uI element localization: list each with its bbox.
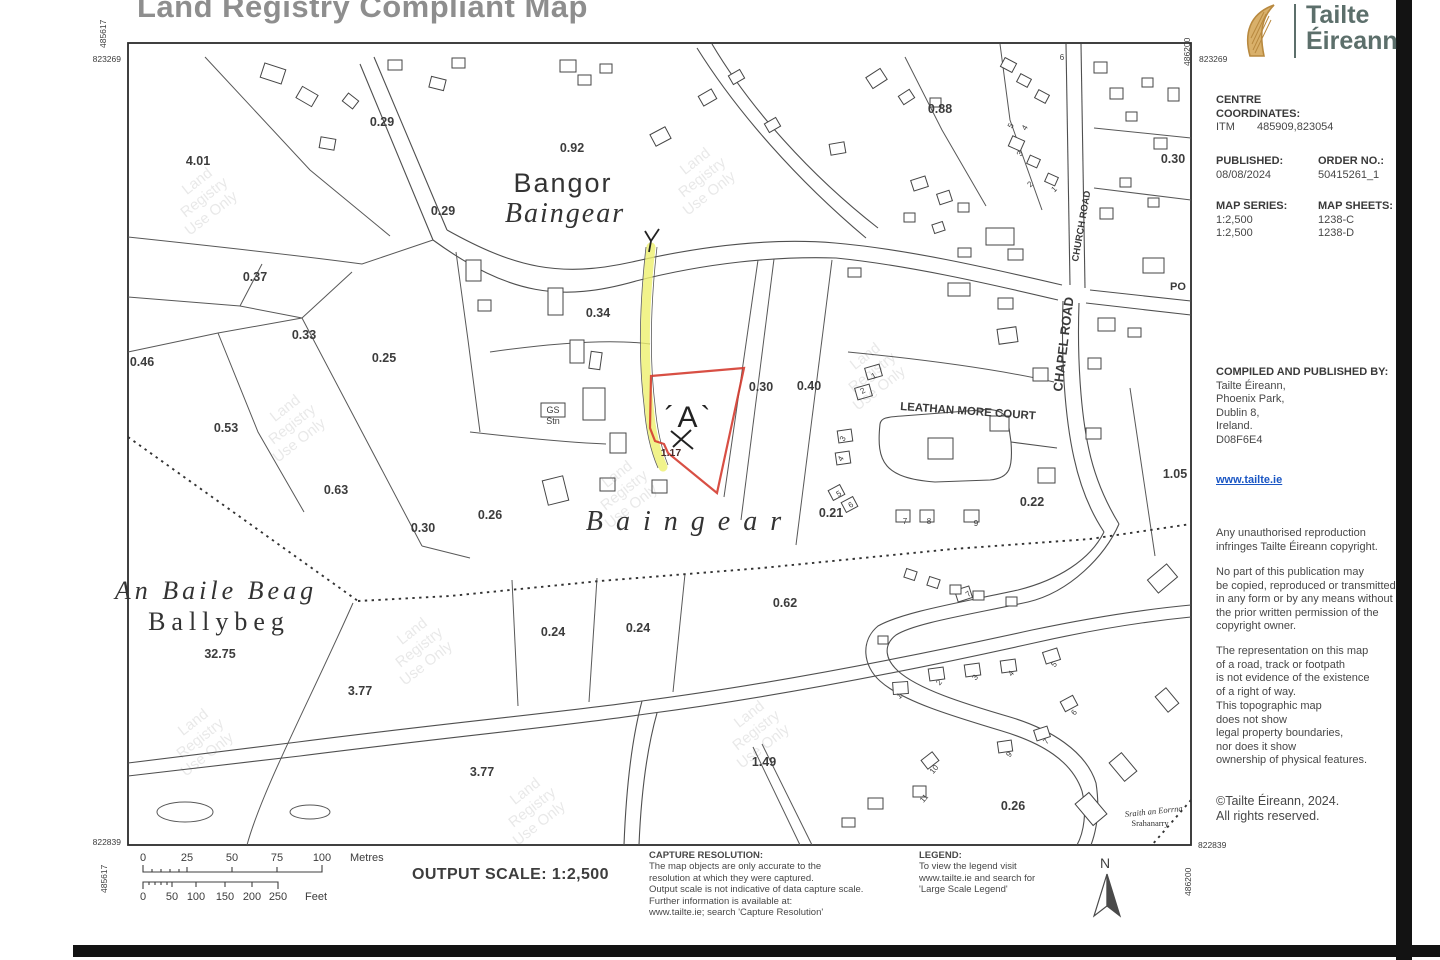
building-footprint [296, 86, 318, 106]
street-name-label: PO [1170, 281, 1186, 293]
coordinates-heading: COORDINATES: [1216, 108, 1300, 120]
street-name-label: GS [546, 405, 559, 415]
text-line: To view the legend visit [919, 861, 1079, 872]
building-footprint [1008, 249, 1023, 260]
house-number-label: 7 [903, 517, 908, 526]
order-no-label: ORDER NO.: [1318, 155, 1384, 167]
scalebar-feet-unit: Feet [305, 891, 327, 903]
parcel-area-label: 0.92 [560, 141, 584, 155]
building-footprint [893, 681, 909, 694]
text-line: The representation on this map [1216, 645, 1400, 659]
building-footprint [973, 591, 984, 600]
building-footprint [570, 340, 584, 363]
parcel-area-label: 0.63 [324, 483, 348, 497]
scalebar-metres-tick: 100 [313, 852, 331, 864]
building-footprint [1120, 178, 1131, 187]
building-footprint [878, 636, 888, 644]
text-line: ©Tailte Éireann, 2024. [1216, 794, 1400, 809]
parcel-area-label: 0.22 [1020, 495, 1044, 509]
house-number-label: 6 [1060, 53, 1065, 62]
itm-value: 485909,823054 [1257, 121, 1333, 135]
place-name-label: An Baile Beag [113, 576, 317, 605]
house-number-label: 4 [1020, 123, 1030, 132]
scalebar-metres-tick: 75 [271, 852, 283, 864]
grid-coordinate-label: 822839 [1198, 840, 1227, 850]
place-name-label: Bangor [513, 168, 612, 198]
text-line: is not evidence of the existence [1216, 672, 1400, 686]
itm-label: ITM [1216, 121, 1235, 135]
grid-coordinate-label: 486200 [1183, 867, 1193, 896]
north-label: N [1100, 855, 1110, 871]
building-footprint [1094, 62, 1107, 73]
building-footprint [1100, 208, 1113, 219]
text-line: 1:2,500 [1216, 214, 1318, 228]
parcel-area-label: 0.26 [478, 508, 502, 522]
building-footprint [1008, 136, 1024, 151]
text-line: All rights reserved. [1216, 809, 1400, 824]
building-footprint [260, 63, 286, 84]
text-line: No part of this publication may [1216, 566, 1400, 580]
scalebar-metres-tick: 25 [181, 852, 193, 864]
text-line: 1238-D [1318, 227, 1393, 241]
parcel-area-label: 0.37 [243, 270, 267, 284]
map-series-label: MAP SERIES: [1216, 200, 1287, 212]
published-label: PUBLISHED: [1216, 155, 1283, 167]
text-line: The map objects are only accurate to the [649, 861, 915, 872]
parcel-area-label: 1.05 [1163, 467, 1187, 481]
scalebar-metres-tick: 50 [226, 852, 238, 864]
building-footprint [583, 388, 605, 420]
text-line: 1238-C [1318, 214, 1393, 228]
parcel-area-label: 0.33 [292, 328, 316, 342]
grid-coordinate-label: 822839 [93, 837, 122, 847]
capture-resolution-block: CAPTURE RESOLUTION: The map objects are … [649, 850, 915, 918]
building-footprint [1035, 90, 1050, 104]
building-footprint [1000, 58, 1016, 73]
text-line: legal property boundaries, [1216, 727, 1400, 741]
published-order-block: PUBLISHED: 08/08/2024 ORDER NO.: 5041526… [1216, 155, 1400, 182]
building-footprint [1142, 78, 1153, 87]
text-line: of a road, track or footpath [1216, 659, 1400, 673]
building-footprint [868, 798, 883, 809]
text-line: 'Large Scale Legend' [919, 884, 1079, 895]
red-parcel-area-label: 1.17 [661, 447, 682, 459]
building-footprint [1075, 792, 1107, 825]
building-footprint [319, 137, 336, 150]
grid-coordinate-label: 823269 [1199, 54, 1228, 64]
street-name-label: Stn [546, 416, 560, 426]
page-title: Land Registry Compliant Map [137, 0, 588, 25]
map-series-values: 1:2,5001:2,500 [1216, 214, 1318, 241]
building-footprint [958, 248, 971, 257]
street-name-label: CHURCH ROAD [1070, 190, 1093, 263]
building-footprint [1143, 258, 1164, 273]
building-footprint [1060, 695, 1078, 711]
copying-note: No part of this publication maybe copied… [1216, 566, 1400, 634]
building-footprint [866, 68, 887, 88]
street-name-label: CHAPEL ROAD [1050, 296, 1076, 392]
brand-divider [1294, 4, 1296, 58]
scalebar-feet-tick: 100 [187, 891, 205, 903]
compiled-heading: COMPILED AND PUBLISHED BY: [1216, 366, 1388, 378]
centre-heading: CENTRE [1216, 94, 1261, 106]
capture-resolution-heading: CAPTURE RESOLUTION: [649, 850, 915, 861]
order-no-value: 50415261_1 [1318, 169, 1384, 183]
text-line: nor does it show [1216, 741, 1400, 755]
parcel-area-label: 0.29 [431, 204, 455, 218]
building-footprint [932, 222, 945, 234]
building-footprint [898, 89, 914, 104]
text-line: This topographic map [1216, 700, 1400, 714]
building-footprint [1045, 173, 1059, 186]
building-footprint [948, 283, 970, 296]
building-footprint [1128, 328, 1141, 337]
building-footprint [958, 203, 969, 212]
building-footprint [911, 176, 929, 191]
parcel-area-label: 32.75 [204, 647, 235, 661]
text-line: of a right of way. [1216, 686, 1400, 700]
parcel-area-label: 0.30 [1161, 152, 1185, 166]
place-name-label: Srahanarry [1131, 818, 1169, 828]
building-footprint [578, 75, 591, 85]
building-footprint [478, 300, 491, 311]
publisher-address: Tailte Éireann,Phoenix Park,Dublin 8,Ire… [1216, 380, 1400, 448]
scale-bar-feet [143, 882, 278, 889]
parcel-area-label: 0.62 [773, 596, 797, 610]
building-footprint [1038, 468, 1055, 483]
house-number-label: 8 [927, 517, 932, 526]
house-number-label: 9 [974, 519, 979, 528]
street-name-label: LEATHAN MORE COURT [900, 401, 1036, 422]
building-footprint [1017, 74, 1032, 88]
building-footprint [589, 351, 602, 369]
scalebar-feet-tick: 250 [269, 891, 287, 903]
text-line: Output scale is not indicative of data c… [649, 884, 915, 895]
parcel-area-label: 0.88 [928, 102, 952, 116]
building-footprint [1088, 358, 1101, 369]
tailte-eireann-brand: Tailte Éireann [1240, 2, 1398, 60]
building-footprint [1033, 368, 1048, 381]
parcel-area-label: 0.29 [370, 115, 394, 129]
plan-marker-a-label: ´A` [665, 401, 714, 434]
right-of-way-note: The representation on this mapof a road,… [1216, 645, 1400, 699]
parcel-area-label: 3.77 [348, 684, 372, 698]
building-footprint [429, 76, 446, 90]
scalebar-feet-tick: 200 [243, 891, 261, 903]
copyright-block: ©Tailte Éireann, 2024.All rights reserve… [1216, 794, 1400, 824]
building-footprint [1006, 597, 1017, 606]
building-footprint [600, 64, 612, 73]
parcel-area-label: 0.26 [1001, 799, 1025, 813]
parcel-area-label: 0.30 [411, 521, 435, 535]
place-name-label: Sraith an Eorrna [1124, 803, 1183, 819]
building-footprint [937, 190, 953, 204]
text-line: Dublin 8, [1216, 407, 1400, 421]
house-number-label: 6 [1069, 707, 1079, 717]
building-footprint [1027, 155, 1041, 168]
building-footprint [927, 577, 940, 589]
building-footprint [342, 93, 358, 109]
text-line: the prior written permission of the [1216, 607, 1400, 621]
reproduction-note: Any unauthorised reproductioninfringes T… [1216, 527, 1400, 554]
legend-heading: LEGEND: [919, 850, 1079, 861]
building-footprint [728, 69, 744, 84]
website-block: www.tailte.ie [1216, 474, 1400, 488]
parcel-area-label: 0.46 [130, 355, 154, 369]
building-footprint [848, 268, 861, 277]
scalebar-feet-tick: 150 [216, 891, 234, 903]
building-footprint [928, 438, 953, 459]
building-footprint [904, 213, 915, 222]
building-footprint [1086, 428, 1101, 439]
scale-bar-metres [143, 865, 322, 872]
text-line: www.tailte.ie and search for [919, 873, 1079, 884]
parcel-area-label: 0.24 [626, 621, 650, 635]
text-line: Ireland. [1216, 420, 1400, 434]
topographic-note: This topographic mapdoes not showlegal p… [1216, 700, 1400, 768]
text-line: in any form or by any means without [1216, 593, 1400, 607]
text-line: Any unauthorised reproduction [1216, 527, 1400, 541]
building-footprint [1109, 753, 1137, 782]
parcel-area-label: 0.40 [797, 379, 821, 393]
text-line: Phoenix Park, [1216, 393, 1400, 407]
text-line: be copied, reproduced or transmitted [1216, 580, 1400, 594]
centre-coordinates-block: CENTRE COORDINATES: ITM 485909,823054 [1216, 94, 1400, 135]
grid-coordinate-label: 486200 [1182, 37, 1192, 66]
text-line: www.tailte.ie; search 'Capture Resolutio… [649, 907, 915, 918]
building-footprint [610, 433, 626, 453]
text-line: resolution at which they were captured. [649, 873, 915, 884]
building-footprint [1098, 318, 1115, 331]
text-line: D08F6E4 [1216, 434, 1400, 448]
building-footprint [986, 228, 1014, 245]
parcel-area-label: 0.25 [372, 351, 396, 365]
building-footprint [1126, 112, 1137, 121]
text-line: does not show [1216, 714, 1400, 728]
north-arrow-icon [1094, 874, 1120, 916]
parcel-area-label: 0.34 [586, 306, 610, 320]
building-footprint [1147, 564, 1177, 593]
parcel-area-label: 0.53 [214, 421, 238, 435]
tailte-website-link: www.tailte.ie [1216, 474, 1282, 486]
compiled-by-block: COMPILED AND PUBLISHED BY: Tailte Éirean… [1216, 366, 1400, 447]
legend-block: LEGEND: To view the legend visitwww.tail… [919, 850, 1079, 896]
map-sheets-values: 1238-C1238-D [1318, 214, 1393, 241]
building-footprint [904, 569, 917, 581]
building-footprint [950, 585, 961, 594]
text-line: Further information is available at: [649, 896, 915, 907]
text-line: ownership of physical features. [1216, 754, 1400, 768]
building-footprint [1148, 198, 1159, 207]
scalebar-feet-tick: 50 [166, 891, 178, 903]
place-name-label: Baingear [505, 198, 625, 229]
building-footprint [388, 60, 402, 70]
building-footprint [829, 142, 846, 155]
building-footprint [1110, 88, 1123, 99]
building-footprint [998, 298, 1013, 309]
series-sheets-block: MAP SERIES: 1:2,5001:2,500 MAP SHEETS: 1… [1216, 200, 1400, 241]
scalebar-metres-unit: Metres [350, 852, 384, 864]
text-line: 1:2,500 [1216, 227, 1318, 241]
building-footprint [1154, 138, 1167, 149]
output-scale-label: OUTPUT SCALE: 1:2,500 [412, 866, 609, 884]
building-footprint [997, 327, 1018, 344]
building-footprint [466, 260, 481, 281]
grid-coordinate-label: 823269 [93, 54, 122, 64]
building-footprint [650, 127, 671, 146]
building-footprint [560, 60, 576, 72]
map-sheets-label: MAP SHEETS: [1318, 200, 1393, 212]
grid-coordinate-label: 485617 [99, 864, 109, 893]
parcel-area-label: 4.01 [186, 154, 210, 168]
building-footprint [452, 58, 465, 68]
place-name-label: Ballybeg [148, 607, 290, 636]
building-footprint [764, 117, 780, 132]
scalebar-metres-tick: 0 [140, 852, 146, 864]
harp-icon [1240, 2, 1286, 60]
building-footprint [548, 288, 563, 315]
building-footprint [698, 89, 716, 106]
published-date: 08/08/2024 [1216, 169, 1318, 183]
scalebar-feet-tick: 0 [140, 891, 146, 903]
building-footprint [1155, 688, 1179, 712]
text-line: copyright owner. [1216, 620, 1400, 634]
text-line: infringes Tailte Éireann copyright. [1216, 541, 1400, 555]
grid-coordinate-label: 485617 [98, 19, 108, 48]
building-footprint [842, 818, 855, 827]
parcel-area-label: 0.21 [819, 506, 843, 520]
text-line: Tailte Éireann, [1216, 380, 1400, 394]
building-footprint [1168, 88, 1179, 101]
scan-edge-bottom [73, 945, 1440, 957]
brand-name: Tailte Éireann [1306, 2, 1398, 54]
building-footprint [542, 476, 568, 505]
parcel-area-label: 3.77 [470, 765, 494, 779]
parcel-area-label: 0.24 [541, 625, 565, 639]
parcel-area-label: 0.30 [749, 380, 773, 394]
